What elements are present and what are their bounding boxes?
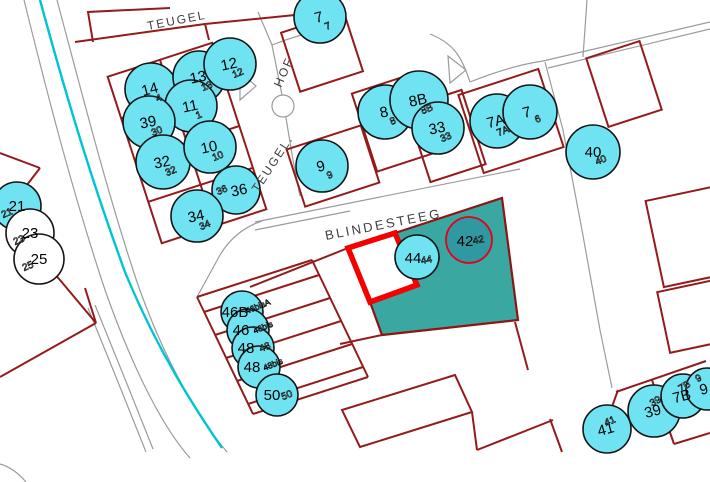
address-label: 48: [238, 340, 255, 357]
address-label: 48: [244, 359, 261, 376]
roundabout-circle: [272, 95, 294, 117]
address-label: 44: [405, 250, 422, 267]
address-label: 36: [229, 181, 249, 201]
address-label: 50: [264, 387, 281, 404]
address-label: 42: [457, 233, 474, 250]
map-canvas[interactable]: 7 7 14 4 13 13 12 12 11 1 39 30 32 32 10…: [0, 0, 710, 482]
map-viewport: 7 7 14 4 13 13 12 12 11 1 39 30 32 32 10…: [0, 0, 710, 482]
address-label: 46: [233, 322, 250, 339]
